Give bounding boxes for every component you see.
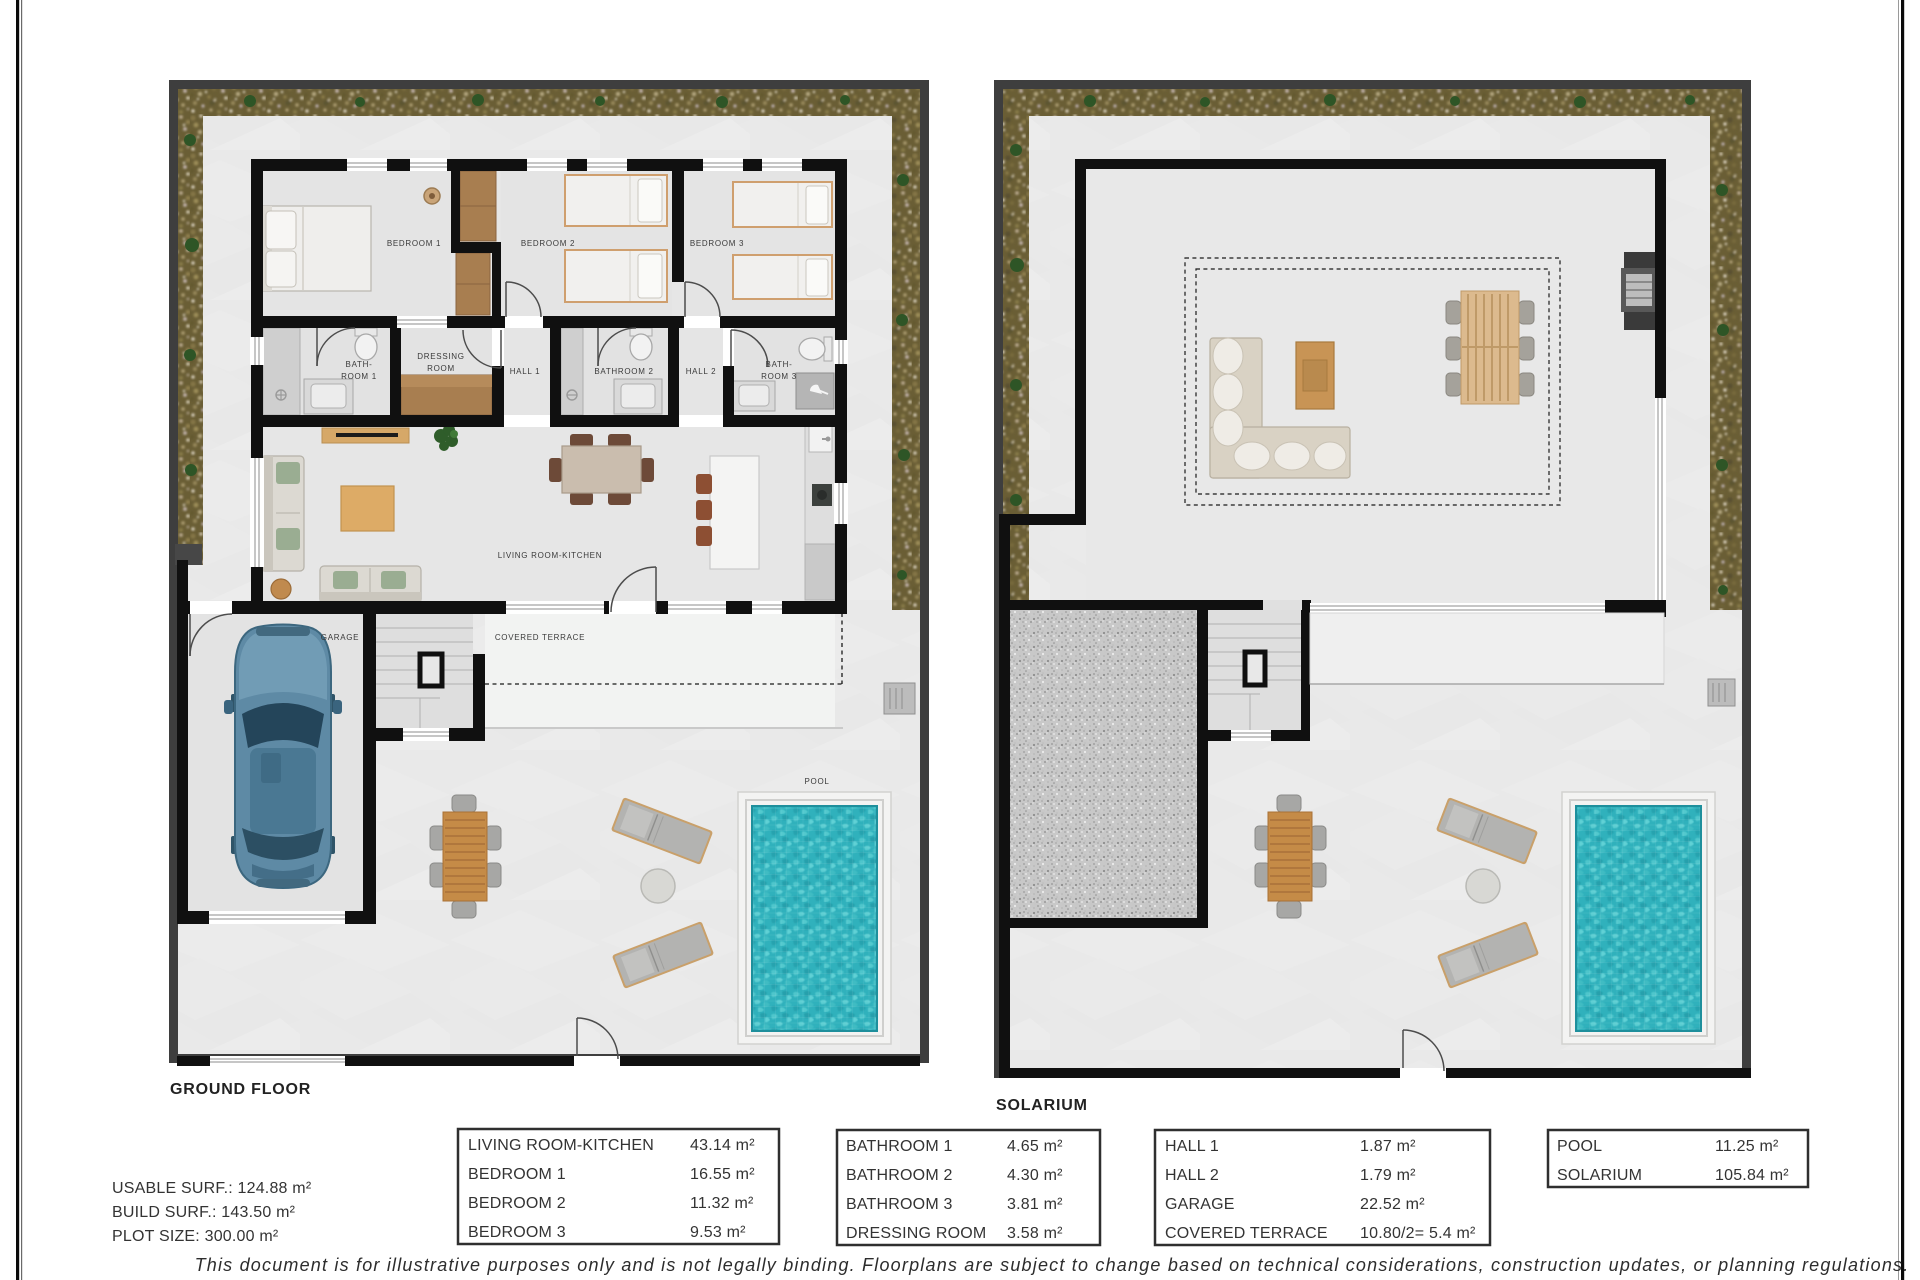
svg-text:HALL 1: HALL 1 (1165, 1138, 1219, 1155)
svg-text:LIVING ROOM-KITCHEN: LIVING ROOM-KITCHEN (468, 1137, 654, 1154)
svg-text:11.32 m²: 11.32 m² (690, 1195, 754, 1212)
svg-text:1.87 m²: 1.87 m² (1360, 1138, 1416, 1155)
svg-text:COVERED TERRACE: COVERED TERRACE (495, 633, 585, 642)
svg-text:POOL: POOL (804, 777, 829, 786)
svg-text:HALL 2: HALL 2 (1165, 1167, 1219, 1184)
svg-text:BATH-: BATH- (346, 360, 373, 369)
svg-text:3.81 m²: 3.81 m² (1007, 1196, 1063, 1213)
svg-text:BATHROOM 2: BATHROOM 2 (846, 1167, 953, 1184)
svg-text:1.79 m²: 1.79 m² (1360, 1167, 1416, 1184)
svg-text:16.55 m²: 16.55 m² (690, 1166, 755, 1183)
svg-text:11.25 m²: 11.25 m² (1715, 1138, 1779, 1155)
svg-text:BEDROOM 3: BEDROOM 3 (468, 1224, 566, 1241)
svg-text:3.58 m²: 3.58 m² (1007, 1225, 1063, 1242)
svg-text:GARAGE: GARAGE (321, 633, 359, 642)
svg-text:DRESSING ROOM: DRESSING ROOM (846, 1225, 986, 1242)
svg-text:USABLE SURF.: 124.88 m²: USABLE SURF.: 124.88 m² (112, 1180, 312, 1197)
svg-text:4.30 m²: 4.30 m² (1007, 1167, 1063, 1184)
svg-text:HALL 2: HALL 2 (686, 367, 717, 376)
svg-text:105.84 m²: 105.84 m² (1715, 1167, 1789, 1184)
svg-text:GARAGE: GARAGE (1165, 1196, 1235, 1213)
svg-text:9.53 m²: 9.53 m² (690, 1224, 746, 1241)
svg-text:BATHROOM 2: BATHROOM 2 (594, 367, 653, 376)
svg-text:DRESSING: DRESSING (417, 352, 464, 361)
svg-text:BATH-: BATH- (766, 360, 793, 369)
svg-text:BATHROOM 1: BATHROOM 1 (846, 1138, 953, 1155)
svg-text:ROOM: ROOM (427, 364, 455, 373)
svg-text:43.14 m²: 43.14 m² (690, 1137, 755, 1154)
svg-text:ROOM 1: ROOM 1 (341, 372, 377, 381)
svg-text:LIVING ROOM-KITCHEN: LIVING ROOM-KITCHEN (498, 551, 602, 560)
svg-text:10.80/2= 5.4 m²: 10.80/2= 5.4 m² (1360, 1225, 1476, 1242)
svg-text:SOLARIUM: SOLARIUM (996, 1097, 1088, 1114)
svg-text:This document is for illustrat: This document is for illustrative purpos… (195, 1255, 1910, 1275)
svg-text:GROUND FLOOR: GROUND FLOOR (170, 1081, 311, 1098)
svg-text:HALL 1: HALL 1 (510, 367, 541, 376)
svg-text:BEDROOM 1: BEDROOM 1 (468, 1166, 566, 1183)
svg-text:BEDROOM 1: BEDROOM 1 (387, 239, 441, 248)
svg-text:POOL: POOL (1557, 1138, 1602, 1155)
svg-text:BEDROOM 2: BEDROOM 2 (521, 239, 575, 248)
svg-text:COVERED TERRACE: COVERED TERRACE (1165, 1225, 1328, 1242)
svg-text:22.52 m²: 22.52 m² (1360, 1196, 1425, 1213)
svg-text:PLOT SIZE: 300.00 m²: PLOT SIZE: 300.00 m² (112, 1228, 279, 1245)
svg-text:BATHROOM 3: BATHROOM 3 (846, 1196, 953, 1213)
svg-text:4.65 m²: 4.65 m² (1007, 1138, 1063, 1155)
svg-text:BEDROOM 2: BEDROOM 2 (468, 1195, 566, 1212)
svg-text:ROOM 3: ROOM 3 (761, 372, 797, 381)
svg-text:SOLARIUM: SOLARIUM (1557, 1167, 1642, 1184)
svg-text:BUILD SURF.: 143.50 m²: BUILD SURF.: 143.50 m² (112, 1204, 296, 1221)
svg-text:BEDROOM 3: BEDROOM 3 (690, 239, 744, 248)
